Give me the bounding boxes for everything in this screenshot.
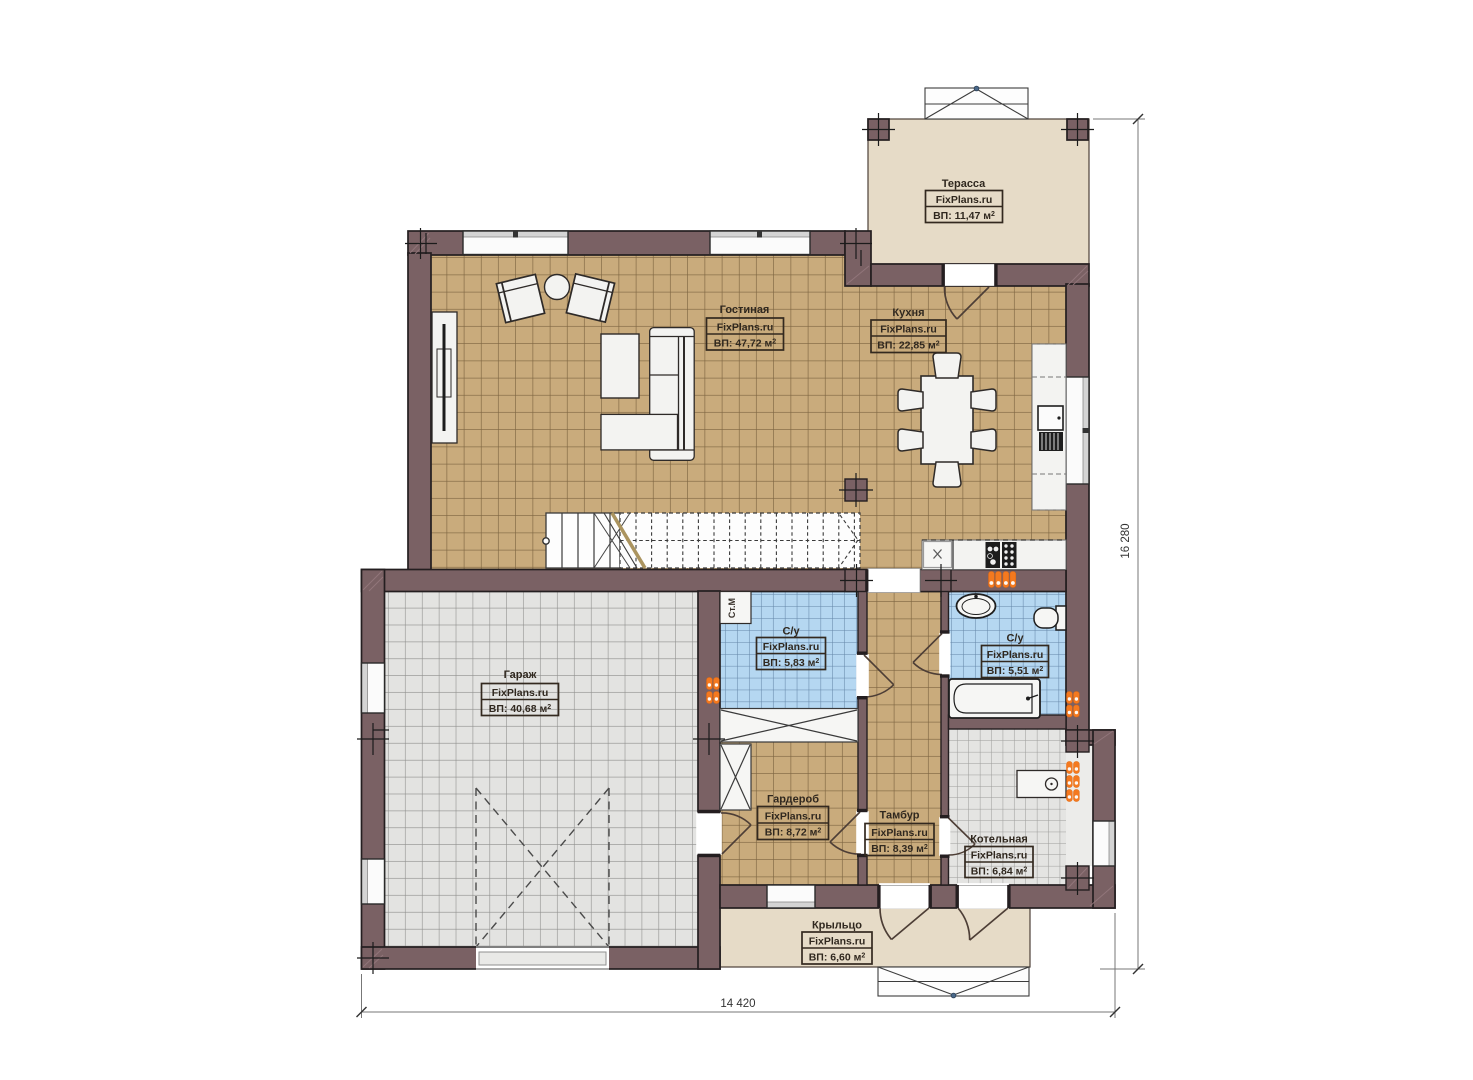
- svg-text:Гостиная: Гостиная: [720, 304, 770, 316]
- svg-text:Тамбур: Тамбур: [880, 810, 920, 822]
- svg-text:С/у: С/у: [782, 626, 800, 638]
- svg-text:Гараж: Гараж: [504, 669, 537, 681]
- svg-text:ВП: 47,72 м2: ВП: 47,72 м2: [714, 338, 777, 350]
- svg-text:Крыльцо: Крыльцо: [812, 920, 862, 932]
- svg-text:Котельная: Котельная: [970, 834, 1028, 846]
- svg-text:Ст.М: Ст.М: [727, 598, 737, 618]
- svg-text:ВП: 6,84 м2: ВП: 6,84 м2: [971, 866, 1028, 878]
- svg-text:С/у: С/у: [1006, 633, 1024, 645]
- svg-text:FixPlans.ru: FixPlans.ru: [809, 936, 866, 948]
- svg-text:FixPlans.ru: FixPlans.ru: [880, 324, 937, 336]
- svg-text:ВП: 5,51 м2: ВП: 5,51 м2: [987, 665, 1044, 677]
- svg-text:ВП: 40,68 м2: ВП: 40,68 м2: [489, 703, 552, 715]
- svg-text:ВП: 8,39 м2: ВП: 8,39 м2: [871, 843, 928, 855]
- svg-text:ВП: 6,60 м2: ВП: 6,60 м2: [809, 952, 866, 964]
- svg-text:FixPlans.ru: FixPlans.ru: [871, 827, 928, 839]
- svg-text:FixPlans.ru: FixPlans.ru: [987, 649, 1044, 661]
- svg-text:Гардероб: Гардероб: [767, 794, 819, 806]
- svg-text:16 280: 16 280: [1120, 523, 1132, 558]
- svg-text:FixPlans.ru: FixPlans.ru: [936, 194, 993, 206]
- svg-text:ВП: 5,83 м2: ВП: 5,83 м2: [763, 657, 820, 669]
- svg-text:FixPlans.ru: FixPlans.ru: [717, 322, 774, 334]
- svg-text:Кухня: Кухня: [892, 307, 924, 319]
- svg-text:FixPlans.ru: FixPlans.ru: [763, 641, 820, 653]
- svg-text:FixPlans.ru: FixPlans.ru: [492, 687, 549, 699]
- svg-text:ВП: 11,47 м2: ВП: 11,47 м2: [933, 210, 995, 222]
- svg-text:Терасса: Терасса: [942, 178, 986, 190]
- svg-text:ВП: 8,72 м2: ВП: 8,72 м2: [765, 827, 822, 839]
- svg-text:14 420: 14 420: [720, 998, 755, 1010]
- svg-text:ВП: 22,85 м2: ВП: 22,85 м2: [877, 340, 940, 352]
- svg-text:FixPlans.ru: FixPlans.ru: [765, 811, 822, 823]
- svg-text:FixPlans.ru: FixPlans.ru: [971, 850, 1028, 862]
